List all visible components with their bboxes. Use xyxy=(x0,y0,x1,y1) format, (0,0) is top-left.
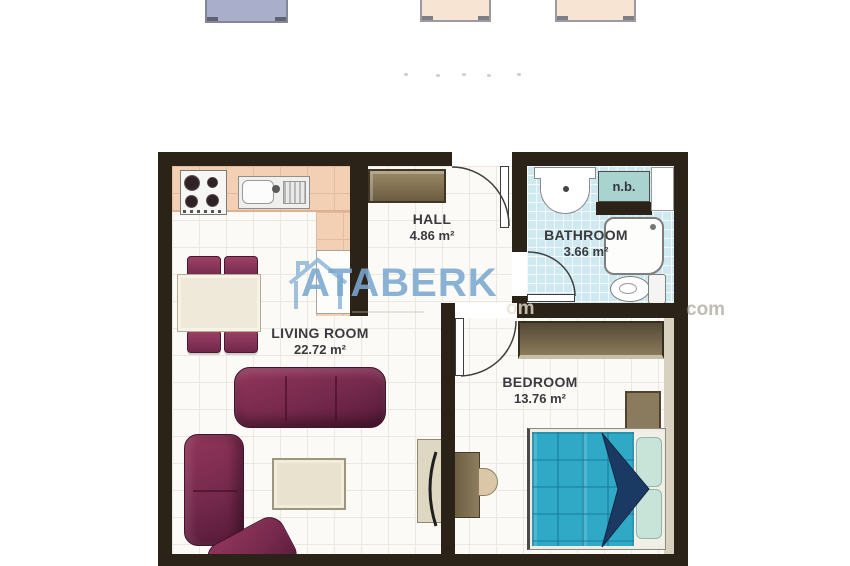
pillow xyxy=(636,489,662,539)
bed-cover xyxy=(532,432,634,546)
desk xyxy=(452,452,480,518)
entrance-door xyxy=(500,166,509,228)
toilet-seat xyxy=(619,283,637,294)
sofa xyxy=(234,367,386,428)
hall-label: HALL 4.86 m² xyxy=(372,210,492,245)
burner-icon xyxy=(185,195,198,208)
burner-icon xyxy=(184,175,200,191)
burner-icon xyxy=(206,194,219,207)
upper-plan-room-peach-1 xyxy=(420,0,491,22)
bedroom-area: 13.76 m² xyxy=(478,391,602,408)
watermark-fragment-mid: om xyxy=(506,298,535,320)
hall-name: HALL xyxy=(372,210,492,228)
dining-table xyxy=(177,274,261,332)
dish-drainer xyxy=(283,181,306,204)
faint-mark xyxy=(436,74,440,77)
watermark-brand: ATABERK xyxy=(301,261,498,306)
watermark-faint-line xyxy=(352,311,424,313)
entrance-opening xyxy=(452,152,512,166)
niche-wall-stub xyxy=(596,202,652,215)
wall-right xyxy=(674,152,688,566)
faint-mark xyxy=(462,73,466,76)
niche-label: n.b. xyxy=(612,179,635,194)
service-panel xyxy=(651,167,674,211)
bathroom-door-opening xyxy=(512,252,527,296)
living-room-area: 22.72 m² xyxy=(252,342,388,359)
loveseat-seam xyxy=(193,490,237,492)
stove-knobs xyxy=(183,210,223,213)
wall-living-bedroom xyxy=(441,312,455,556)
kitchen-sink-counter xyxy=(238,176,310,209)
bedroom-wardrobe xyxy=(518,321,664,359)
faint-mark xyxy=(517,73,521,76)
loveseat xyxy=(184,434,244,546)
niche-unit: n.b. xyxy=(598,171,650,202)
toilet-bowl xyxy=(610,276,650,302)
coffee-table xyxy=(272,458,346,510)
bathroom-label: BATHROOM 3.66 m² xyxy=(527,226,645,261)
bedroom-label: BEDROOM 13.76 m² xyxy=(478,373,602,408)
wall-bottom xyxy=(158,554,688,566)
faint-mark xyxy=(487,74,491,77)
stove xyxy=(180,170,227,215)
wall-top-right xyxy=(512,152,688,166)
sofa-seam xyxy=(335,376,337,421)
bathroom-area: 3.66 m² xyxy=(527,244,645,261)
pillow xyxy=(636,437,662,487)
bathroom-name: BATHROOM xyxy=(527,226,645,244)
wall-hall-bathroom xyxy=(512,166,527,252)
wall-left xyxy=(158,152,172,566)
tv-unit xyxy=(417,439,444,523)
burner-icon xyxy=(207,177,218,188)
toilet-tank xyxy=(648,274,666,304)
nightstand xyxy=(625,391,661,431)
wall-bedroom-top xyxy=(517,303,674,318)
dining-chair xyxy=(187,330,221,353)
living-room-name: LIVING ROOM xyxy=(252,324,388,342)
bedroom-door xyxy=(455,318,464,376)
drain-icon xyxy=(563,186,569,192)
upper-plan-room-peach-2 xyxy=(555,0,636,22)
sofa-seam xyxy=(285,376,287,421)
upper-plan-room-blue xyxy=(205,0,288,23)
hall-area: 4.86 m² xyxy=(372,228,492,245)
wall-top-left xyxy=(158,152,452,166)
floorplan-canvas: n.b. LIVING ROOM 22.72 xyxy=(0,0,850,566)
shower-drain-icon xyxy=(650,224,656,230)
living-room-label: LIVING ROOM 22.72 m² xyxy=(252,324,388,359)
faucet-icon xyxy=(272,185,280,193)
sink-bowl xyxy=(242,180,274,204)
bedroom-name: BEDROOM xyxy=(478,373,602,391)
watermark-fragment-right: com xyxy=(686,299,725,321)
faint-mark xyxy=(404,73,408,76)
hall-wardrobe xyxy=(368,169,446,203)
